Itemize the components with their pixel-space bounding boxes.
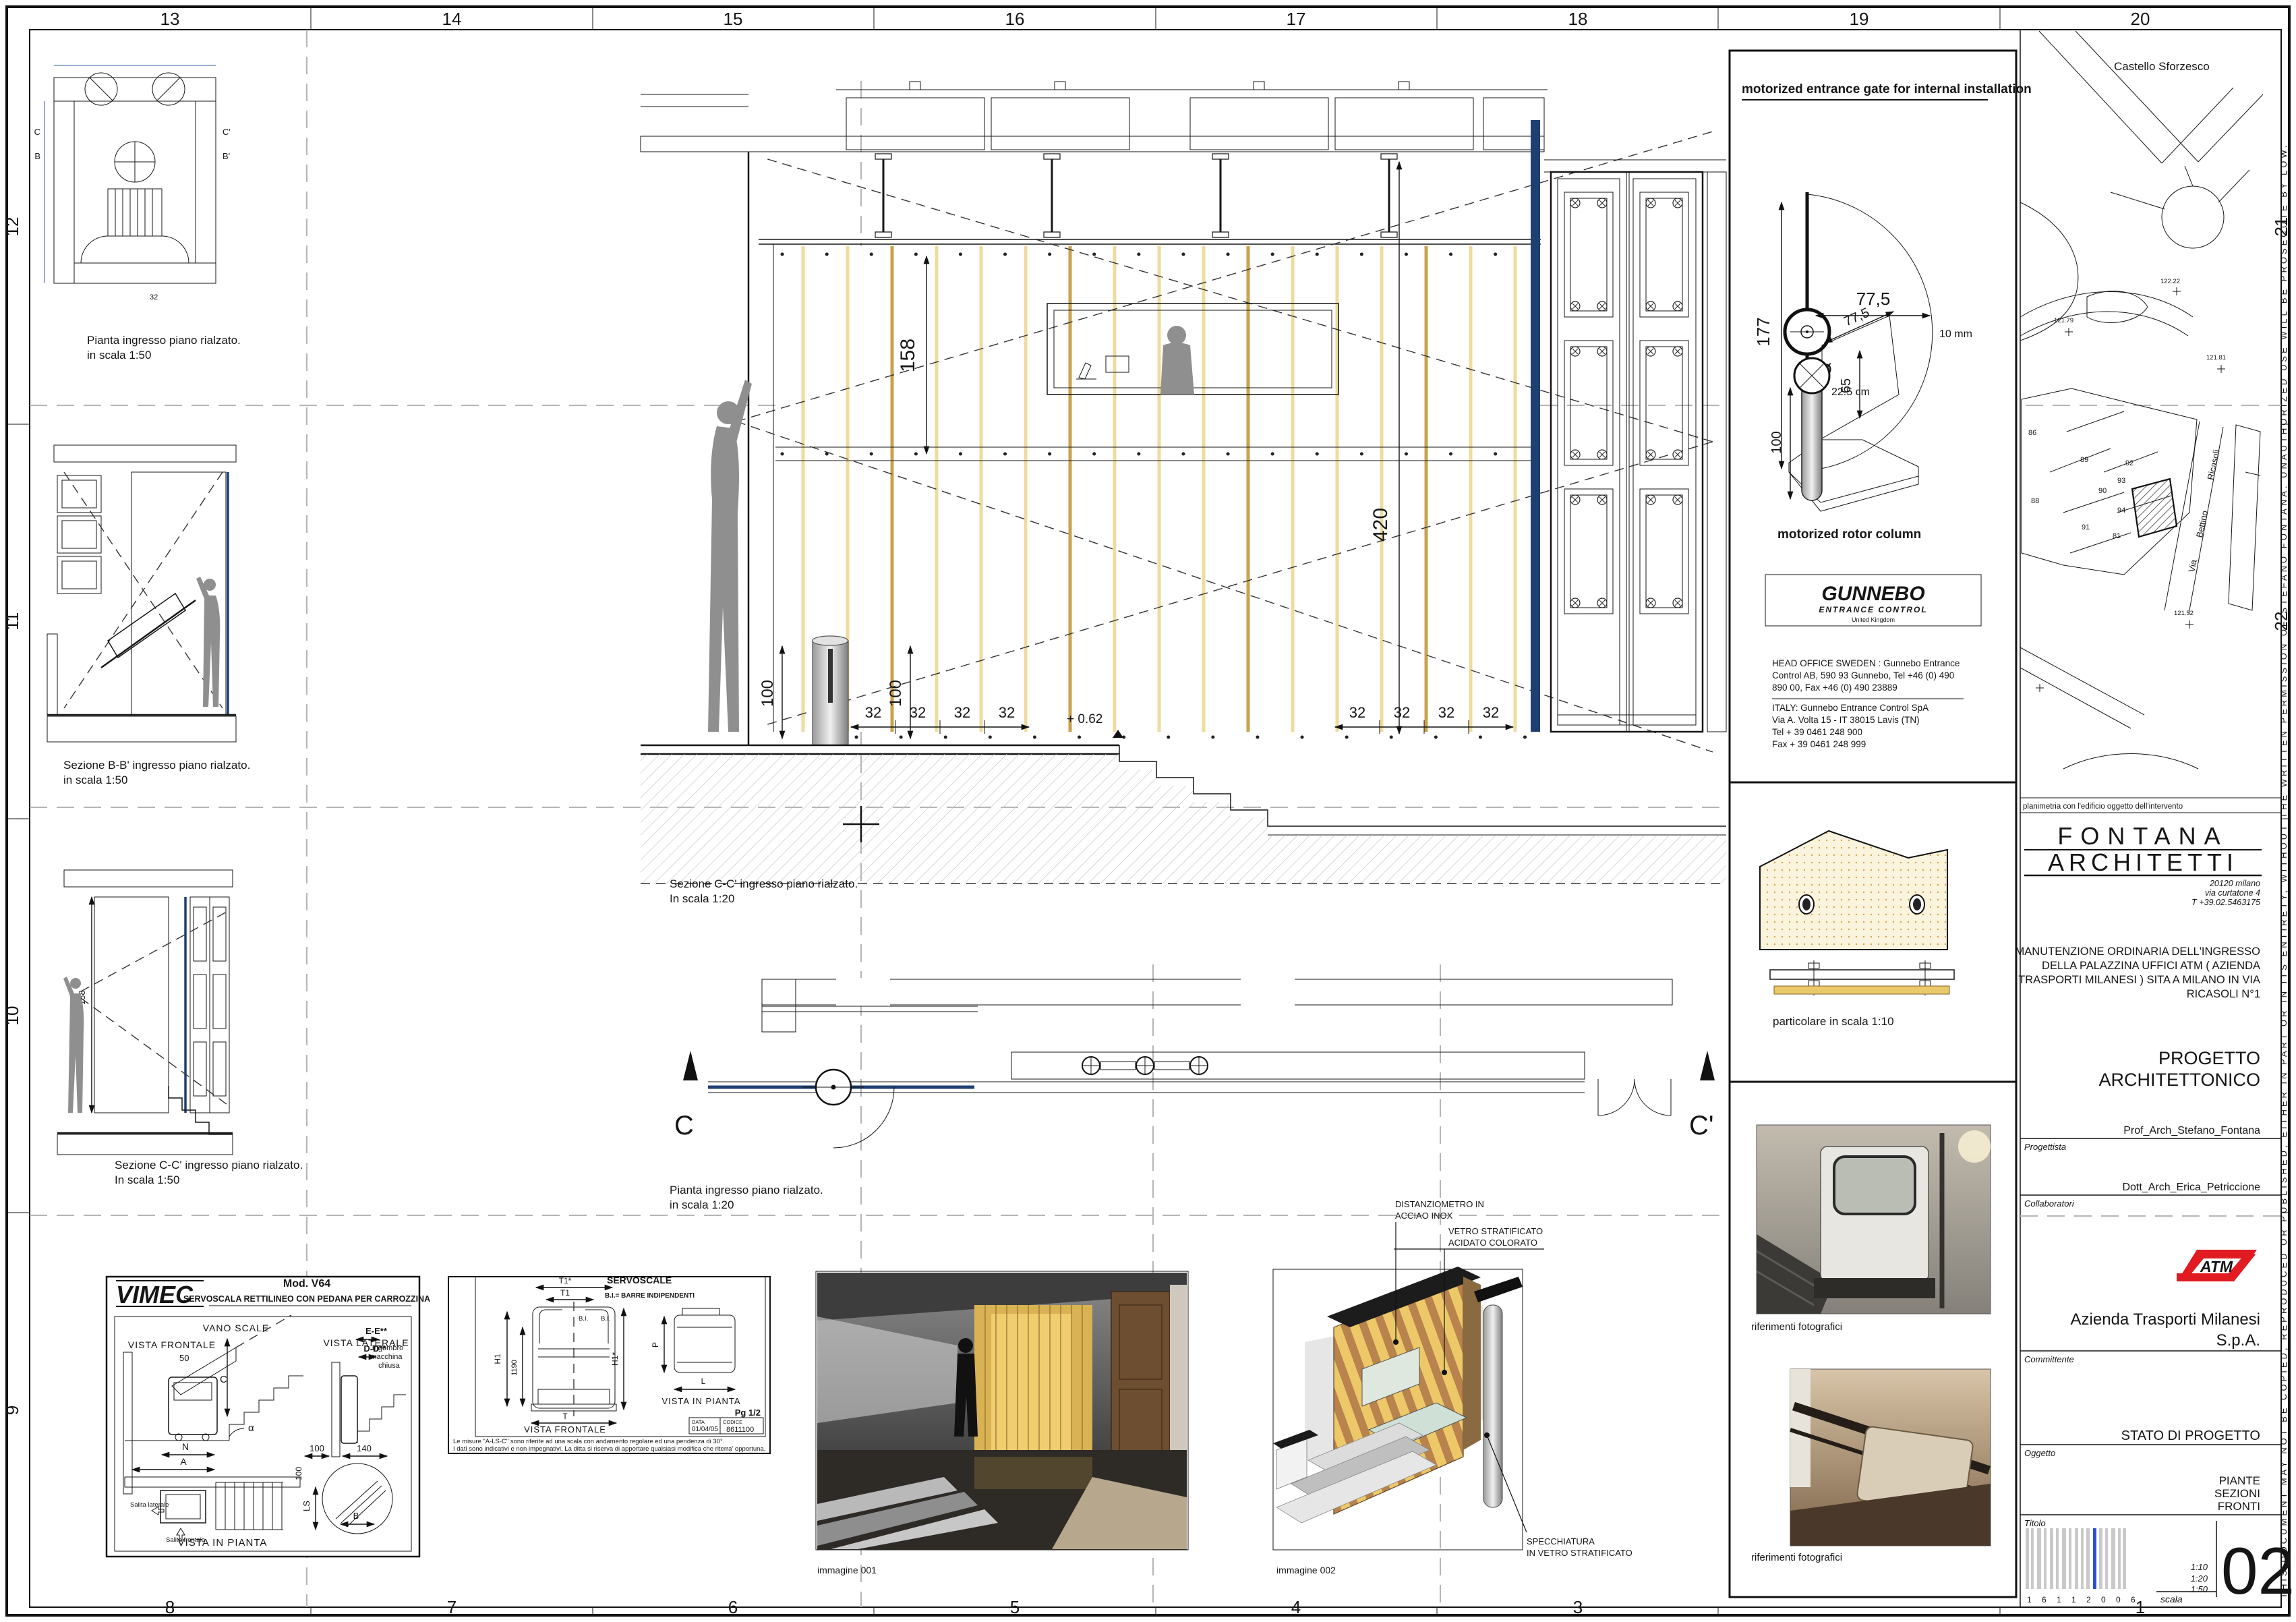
dimension-label: L bbox=[701, 1377, 706, 1386]
grid-number-top: 15 bbox=[724, 9, 743, 29]
dimension-label: 32 bbox=[999, 704, 1015, 721]
address-line: HEAD OFFICE SWEDEN : Gunnebo Entrance bbox=[1772, 658, 1960, 668]
role-label: Collaboratori bbox=[2024, 1198, 2075, 1209]
caption: motorized rotor column bbox=[1777, 527, 1921, 542]
role-label: Titolo bbox=[2024, 1518, 2046, 1528]
address-line: Control AB, 590 93 Gunnebo, Tel +46 (0) … bbox=[1772, 670, 1954, 680]
servoscale-datasheet: SERVOSCALE B.I.= BARRE INDIPENDENTI T1* … bbox=[448, 1275, 770, 1453]
address-line: T +39.02.5463175 bbox=[2191, 898, 2260, 907]
grid-number-top: 17 bbox=[1287, 9, 1306, 29]
drawing-caption: in scala 1:50 bbox=[63, 774, 127, 786]
dimension-label: 32 bbox=[1349, 704, 1365, 721]
drawing-caption: Sezione C-C' ingresso piano rialzato. bbox=[670, 877, 858, 890]
gunnebo-sub: ENTRANCE CONTROL bbox=[1819, 605, 1927, 614]
grid-number-left: 12 bbox=[2, 217, 22, 237]
dimension-label: LS bbox=[301, 1501, 312, 1511]
dimension-label: 158 bbox=[897, 339, 919, 372]
section-marker: C bbox=[674, 1111, 694, 1140]
pedestal-column bbox=[813, 636, 849, 745]
gate-detail-panel: motorized entrance gate for internal ins… bbox=[1730, 51, 2032, 782]
photo-caption: riferimenti fotografici bbox=[1751, 1321, 1842, 1333]
dimension-label: 32 bbox=[954, 704, 970, 721]
client-name: S.p.A. bbox=[2216, 1331, 2260, 1350]
section-marker: B' bbox=[223, 151, 230, 161]
photo-stairlift-2 bbox=[1790, 1369, 1991, 1546]
view-label: VISTA IN PIANTA bbox=[178, 1537, 268, 1548]
dimension-label: A bbox=[180, 1456, 187, 1467]
photos-panel: riferimenti fotografici riferimenti foto… bbox=[1730, 1082, 2016, 1597]
description-line: RICASOLI N°1 bbox=[2187, 988, 2260, 1000]
dimension-label: T1* bbox=[559, 1276, 572, 1285]
dimension-label: 100 bbox=[759, 680, 777, 707]
drawing-caption: Pianta ingresso piano rialzato. bbox=[87, 334, 241, 347]
studio-name: ARCHITETTI bbox=[2048, 848, 2238, 876]
drawing-caption: particolare in scala 1:10 bbox=[1773, 1015, 1894, 1028]
grid-number-top: 14 bbox=[442, 9, 462, 29]
drawing-caption: Sezione C-C' ingresso piano rialzato. bbox=[115, 1159, 303, 1171]
dimension-label: 65 bbox=[1839, 378, 1854, 393]
architectural-drawing-sheet: 13 14 15 16 17 18 19 20 8 7 6 5 4 3 1 12… bbox=[0, 0, 2296, 1622]
footnote: Le misure "A-LS-C" sono riferite ad una … bbox=[453, 1438, 724, 1445]
dimension-label: 100 bbox=[1769, 431, 1784, 453]
dimension-label: 10 mm bbox=[1939, 328, 1972, 340]
photo-caption: riferimenti fotografici bbox=[1751, 1552, 1842, 1563]
building-number: 89 bbox=[2080, 456, 2088, 464]
grid-number-top: 20 bbox=[2131, 9, 2150, 29]
dimension-label: 177 bbox=[1753, 317, 1773, 346]
barcode-digits: 1 6 1 1 2 0 0 6 bbox=[2027, 1595, 2140, 1604]
section-marker: C' bbox=[1689, 1111, 1714, 1140]
dimension-label: 140 bbox=[357, 1443, 372, 1453]
annotation: ACIDATO COLORATO bbox=[1448, 1238, 1537, 1248]
map-subject-building bbox=[2132, 479, 2177, 537]
dimension-label: T1 bbox=[560, 1288, 570, 1298]
project-type: ARCHITETTONICO bbox=[2098, 1070, 2260, 1090]
section-marker: C bbox=[34, 127, 40, 137]
model-label: Mod. V64 bbox=[283, 1278, 330, 1290]
note-label: Ingombro bbox=[372, 1344, 403, 1352]
grid-number-left: 11 bbox=[2, 612, 22, 631]
image-caption: immagine 002 bbox=[1276, 1565, 1336, 1575]
note-label: B.I.= BARRE INDIPENDENTI bbox=[605, 1292, 695, 1300]
description-line: TRASPORTI MILANESI ) SITA A MILANO IN VI… bbox=[2018, 974, 2260, 986]
client-name: Azienda Trasporti Milanesi bbox=[2071, 1310, 2260, 1329]
grid-number-left: 9 bbox=[2, 1406, 22, 1415]
grid-number-top: 16 bbox=[1005, 9, 1025, 29]
dimension-label: 32 bbox=[910, 704, 926, 721]
scale-value: 1:50 bbox=[2191, 1584, 2208, 1594]
dimension-label: 100 bbox=[310, 1443, 324, 1453]
dimension-label: P bbox=[651, 1342, 660, 1348]
render-immagine-001: immagine 001 bbox=[816, 1271, 1188, 1575]
spot-elevation: 122.22 bbox=[2160, 278, 2180, 285]
dimension-label: B.I. bbox=[579, 1315, 588, 1323]
dimension-label: E-E** bbox=[365, 1326, 388, 1336]
role-label: Progettista bbox=[2024, 1142, 2066, 1152]
role-label: Committente bbox=[2024, 1354, 2074, 1364]
project-type: PROGETTO bbox=[2158, 1048, 2260, 1068]
description-line: DELLA PALAZZINA UFFICI ATM ( AZIENDA bbox=[2042, 960, 2260, 972]
gunnebo-uk: United Kingdom bbox=[1852, 616, 1895, 623]
particolare-panel: particolare in scala 1:10 bbox=[1730, 782, 2016, 1082]
drawing-caption: In scala 1:50 bbox=[115, 1174, 179, 1186]
dimension-label: 100 bbox=[887, 680, 905, 707]
scale-value: 1:10 bbox=[2191, 1562, 2208, 1572]
dimension-label: C bbox=[220, 1374, 227, 1385]
dimension-label: 100 bbox=[294, 1467, 303, 1480]
table-value: 01/04/05 bbox=[692, 1426, 718, 1433]
sheet-title: FRONTI bbox=[2218, 1500, 2260, 1513]
grid-number-bottom: 3 bbox=[1573, 1597, 1583, 1617]
copyright-edge-notice: THIS DOCUMENT MAY NOT BE COPIED, REPRODU… bbox=[2278, 142, 2289, 1598]
sheet-title: SEZIONI bbox=[2214, 1487, 2260, 1500]
grid-number-bottom: 6 bbox=[728, 1597, 738, 1617]
atm-logo-text: ATM bbox=[2200, 1258, 2233, 1275]
address-line: Fax + 39 0461 248 999 bbox=[1772, 739, 1866, 749]
dimension-label: 32 bbox=[1483, 704, 1499, 721]
dimension-label: B bbox=[353, 1511, 359, 1521]
building-number: 86 bbox=[2028, 429, 2036, 437]
panel-title: motorized entrance gate for internal ins… bbox=[1742, 82, 2032, 96]
address-line: Tel + 39 0461 248 900 bbox=[1772, 727, 1862, 737]
sheet-title: PIANTE bbox=[2219, 1474, 2260, 1487]
dimension-label: 50 bbox=[179, 1353, 189, 1363]
sheet-number: 02 bbox=[2221, 1534, 2295, 1608]
section-marker: C' bbox=[223, 127, 231, 137]
table-value: 8611100 bbox=[726, 1426, 754, 1434]
dimension-label: 420 bbox=[1370, 508, 1392, 542]
level-label: + 0.62 bbox=[1067, 712, 1102, 726]
section-marker: B bbox=[34, 151, 40, 161]
description-line: MANUTENZIONE ORDINARIA DELL'INGRESSO bbox=[2015, 946, 2261, 958]
dimension-label: H1 bbox=[493, 1354, 502, 1364]
dimension-label: 32 bbox=[1394, 704, 1410, 721]
subtitle: SERVOSCALA RETTILINEO CON PEDANA PER CAR… bbox=[183, 1294, 430, 1304]
dimension-label: α bbox=[248, 1422, 254, 1434]
address-line: ITALY: Gunnebo Entrance Control SpA bbox=[1772, 703, 1929, 713]
gunnebo-logo: GUNNEBO bbox=[1821, 583, 1924, 605]
grid-number-bottom: 4 bbox=[1291, 1597, 1301, 1617]
drawing-caption: in scala 1:20 bbox=[670, 1198, 734, 1211]
collaborator-name: Dott_Arch_Erica_Petriccione bbox=[2122, 1182, 2260, 1193]
scale-label: scala bbox=[2160, 1594, 2183, 1604]
drawing-caption: Pianta ingresso piano rialzato. bbox=[670, 1184, 823, 1196]
grid-number-top: 19 bbox=[1850, 9, 1869, 29]
dimension-label: 1190 bbox=[510, 1360, 519, 1376]
grid-number-top: 13 bbox=[160, 9, 180, 29]
address-line: Via A. Volta 15 - IT 38015 Lavis (TN) bbox=[1772, 715, 1920, 725]
grid-number-left: 10 bbox=[2, 1006, 22, 1026]
vimec-logo: VIMEC bbox=[116, 1281, 194, 1308]
dimension-label: 77,5 bbox=[1856, 289, 1891, 309]
glass-wall-panels bbox=[775, 246, 1531, 732]
address-line: via curtatone 4 bbox=[2205, 888, 2260, 898]
grid-number-bottom: 8 bbox=[165, 1597, 175, 1617]
address-line: 890 00, Fax +46 (0) 490 23889 bbox=[1772, 683, 1897, 693]
image-caption: immagine 001 bbox=[817, 1565, 877, 1575]
note-label: Salita laterale bbox=[130, 1501, 169, 1509]
dimension-label: T bbox=[562, 1412, 568, 1421]
photo-stairlift-1 bbox=[1757, 1125, 1991, 1314]
drawing-caption: In scala 1:20 bbox=[670, 892, 734, 905]
drawing-caption: in scala 1:50 bbox=[87, 349, 151, 361]
building-number: 81 bbox=[2113, 532, 2121, 540]
dimension-label: B.I. bbox=[601, 1315, 610, 1323]
map-landmark-label: Castello Sforzesco bbox=[2114, 60, 2210, 73]
map-caption: planimetria con l'edificio oggetto dell'… bbox=[2023, 803, 2183, 811]
grid-number-bottom: 5 bbox=[1010, 1597, 1020, 1617]
table-header: CODICE bbox=[723, 1419, 742, 1425]
building-number: 94 bbox=[2117, 506, 2125, 515]
footnote: I dati sono indicativi e non impegnativi… bbox=[453, 1445, 765, 1453]
building-number: 91 bbox=[2082, 523, 2090, 531]
table-header: DATA bbox=[692, 1419, 705, 1425]
view-label: VISTA IN PIANTA bbox=[661, 1396, 740, 1406]
spot-elevation: 121.79 bbox=[2054, 317, 2073, 324]
building-number: 93 bbox=[2117, 477, 2125, 485]
drawing-caption: Sezione B-B' ingresso piano rialzato. bbox=[63, 759, 250, 772]
grid-number-top: 18 bbox=[1568, 9, 1588, 29]
role-label: Oggetto bbox=[2024, 1448, 2055, 1458]
view-label: VISTA FRONTALE bbox=[524, 1424, 606, 1435]
view-label: VISTA FRONTALE bbox=[128, 1339, 216, 1350]
spot-elevation: 121.81 bbox=[2206, 354, 2226, 361]
dimension-label: 32 bbox=[150, 293, 158, 301]
scale-value: 1:20 bbox=[2191, 1573, 2208, 1584]
note-label: chiusa bbox=[378, 1362, 401, 1370]
page-label: Pg 1/2 bbox=[735, 1408, 761, 1418]
annotation: SPECCHIATURA bbox=[1527, 1536, 1595, 1546]
annotation: IN VETRO STRATIFICATO bbox=[1527, 1548, 1632, 1558]
title: SERVOSCALE bbox=[607, 1275, 672, 1285]
building-number: 92 bbox=[2125, 459, 2133, 467]
address-line: 20120 milano bbox=[2209, 879, 2260, 888]
grid-number-bottom: 7 bbox=[447, 1597, 457, 1617]
project-status: STATO DI PROGETTO bbox=[2121, 1428, 2260, 1443]
studio-name: FONTANA bbox=[2057, 822, 2228, 850]
scale-values: 1:10 1:20 1:50 bbox=[2191, 1562, 2208, 1594]
vimec-datasheet: VIMEC Mod. V64 SERVOSCALA RETTILINEO CON… bbox=[107, 1277, 430, 1557]
designer-name: Prof_Arch_Stefano_Fontana bbox=[2123, 1125, 2260, 1136]
annotation: ACCIAO INOX bbox=[1395, 1211, 1453, 1221]
spot-elevation: 121.52 bbox=[2174, 610, 2194, 617]
building-number: 88 bbox=[2031, 497, 2039, 505]
glass-fin-section bbox=[1531, 120, 1540, 732]
dimension-label: H1* bbox=[610, 1352, 620, 1366]
dimension-label: 32 bbox=[865, 704, 881, 721]
dimension-label: N bbox=[182, 1441, 189, 1452]
building-number: 90 bbox=[2098, 487, 2107, 495]
annotation: VETRO STRATIFICATO bbox=[1448, 1226, 1543, 1236]
dimension-label: 32 bbox=[1438, 704, 1454, 721]
view-label: VANO SCALE bbox=[203, 1323, 269, 1333]
note-label: macchina bbox=[370, 1353, 403, 1361]
annotation: DISTANZIOMETRO IN bbox=[1395, 1199, 1484, 1209]
